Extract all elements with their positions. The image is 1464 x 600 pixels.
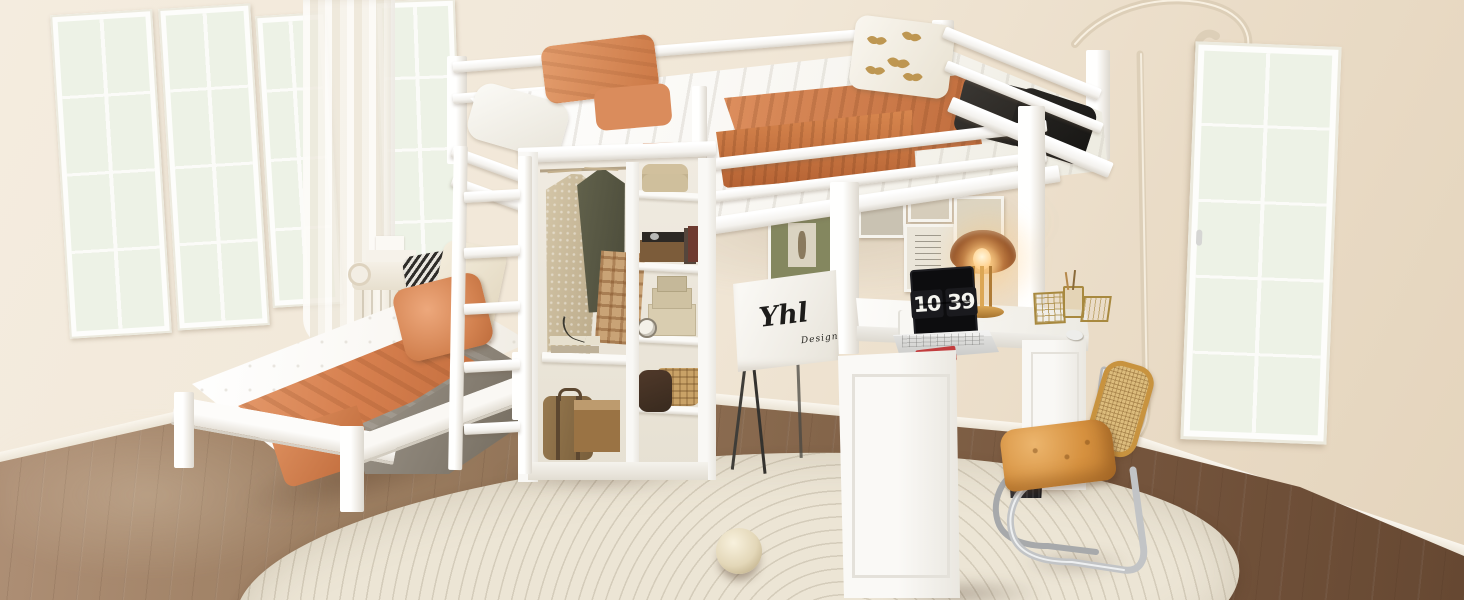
decor-ball bbox=[716, 528, 762, 574]
room-scene: Yhl Design 10 39 bbox=[0, 0, 1464, 600]
chair-chrome-frame bbox=[0, 0, 1464, 600]
